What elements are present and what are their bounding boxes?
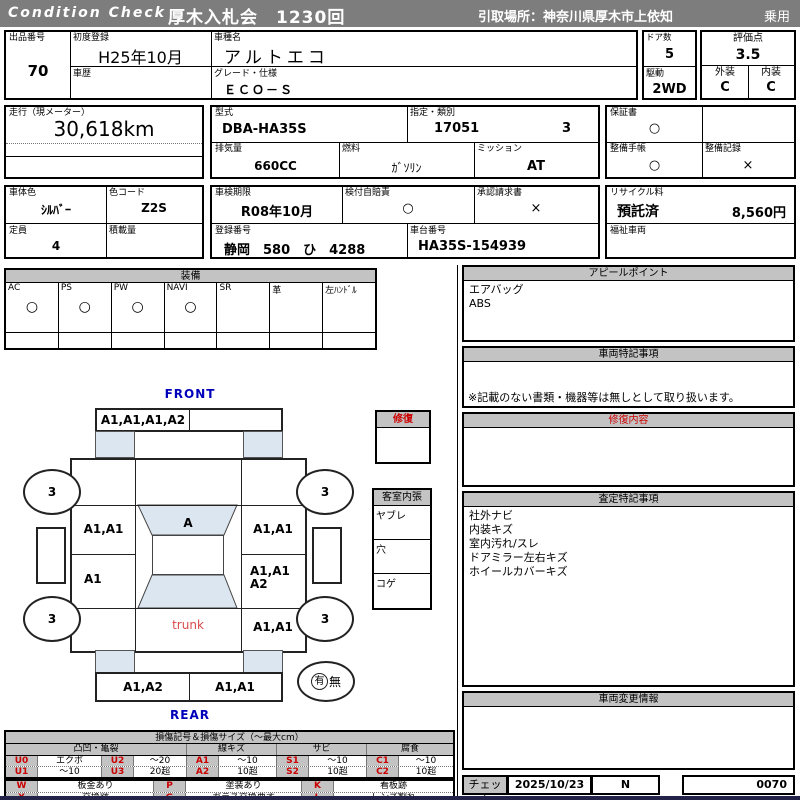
spare-present-mark: 有 xyxy=(311,673,328,690)
registration-number-label: 登録番号 xyxy=(215,226,251,236)
auction-title: 厚木入札会 1230回 xyxy=(168,3,345,28)
legend-size: 10超 xyxy=(219,767,277,777)
appeal-line: エアバッグ xyxy=(469,283,788,297)
equipment-col-ps: PS ○ xyxy=(59,283,112,348)
equipment-col-lhd: 左ﾊﾝﾄﾞﾙ xyxy=(323,283,375,348)
appeal-line: ABS xyxy=(469,297,788,311)
legend-row: W 板金あり P 塗装あり K 看板跡 xyxy=(6,781,453,792)
vehicle-notes-panel: 車両特記事項 ※記載のない書類・機器等は無しとして取り扱います。 xyxy=(462,346,795,408)
tire-rear-left: 3 xyxy=(23,596,81,642)
assessment-notes-body: 社外ナビ 内装キズ 室内汚れ/スレ ドアミラー左右キズ ホイールカバーキズ xyxy=(464,507,793,581)
model-name-label: 車種名 xyxy=(214,33,241,43)
legend-size: 10超 xyxy=(309,767,367,777)
tire-front-left: 3 xyxy=(23,469,81,515)
divider xyxy=(212,223,598,224)
rear-bumper-left-damage: A1,A2 xyxy=(97,680,189,694)
equipment-mark: ○ xyxy=(59,299,111,315)
transmission-label: ミッション xyxy=(477,144,522,154)
color-code: Z2S xyxy=(106,201,202,215)
equipment-col-leather: 革 xyxy=(270,283,323,348)
legend-code: K xyxy=(302,781,334,792)
model-code: DBA-HA35S xyxy=(222,122,307,137)
front-bumper: A1,A1,A1,A2 xyxy=(95,408,283,432)
legend-size: ～10 xyxy=(219,756,277,766)
assessment-line: 内装キズ xyxy=(469,523,788,537)
legend-code: U1 xyxy=(6,767,38,777)
first-registration-label: 初度登録 xyxy=(73,33,109,43)
repair-flag-box: 修復 xyxy=(375,410,431,464)
title-bar: Condition Check 厚木入札会 1230回 引取場所：神奈川県厚木市… xyxy=(0,0,800,27)
fuel: ｶﾞｿﾘﾝ xyxy=(339,159,474,176)
assessment-line: 社外ナビ xyxy=(469,509,788,523)
legend-code: S1 xyxy=(277,756,309,766)
equipment-mark: ○ xyxy=(165,299,217,315)
inspection-expiry-label: 車検期限 xyxy=(215,188,251,198)
equipment-title: 装備 xyxy=(6,270,375,283)
maintenance-record-label: 整備記録 xyxy=(705,144,741,154)
class-number: 17051 xyxy=(434,121,479,136)
legend-desc: 看板跡 xyxy=(334,781,453,792)
assessment-line: ホイールカバーキズ xyxy=(469,565,788,579)
brand-logo: Condition Check xyxy=(8,5,166,21)
appeal-points-title: アピールポイント xyxy=(464,267,793,281)
drive-label: 駆動 xyxy=(646,69,664,79)
assessment-notes-title: 査定特記事項 xyxy=(464,493,793,507)
front-bumper-damage: A1,A1,A1,A2 xyxy=(97,413,189,427)
warranty-label: 保証書 xyxy=(610,108,637,118)
repair-details-body xyxy=(464,428,793,432)
grade: ＥＣＯ－Ｓ xyxy=(224,81,294,98)
lot-number-label: 出品番号 xyxy=(9,33,45,43)
legend-size: 10超 xyxy=(399,767,453,777)
front-label: FRONT xyxy=(150,387,230,401)
divider xyxy=(644,66,695,67)
insurance-label: 検付自賠責 xyxy=(345,188,390,198)
recycle-fee: 8,560円 xyxy=(732,202,786,221)
equipment-col-ac: AC ○ xyxy=(6,283,59,348)
legend-code: C2 xyxy=(367,767,399,777)
legend-size: ～10 xyxy=(38,767,102,777)
legend-desc: 塗装あり xyxy=(186,781,302,792)
divider xyxy=(72,554,135,555)
divider xyxy=(211,32,212,98)
chassis-number: HA35S-154939 xyxy=(418,239,526,254)
interior-condition-box: 客室内張 ヤブレ 穴 コゲ xyxy=(372,488,432,610)
assessment-notes-panel: 査定特記事項 社外ナビ 内装キズ 室内汚れ/スレ ドアミラー左右キズ ホイールカ… xyxy=(462,491,795,687)
legend-code: U0 xyxy=(6,756,38,766)
rear-bumper-right-damage: A1,A1 xyxy=(189,680,281,694)
maintenance-book-mark: ○ xyxy=(607,158,702,173)
rear-left-corner xyxy=(95,650,135,673)
tire-rear-right: 3 xyxy=(296,596,354,642)
page-bottom-rule xyxy=(0,796,800,800)
front-left-corner xyxy=(95,431,135,458)
legend-code: P xyxy=(154,781,186,792)
equipment-col-sr: SR xyxy=(217,283,270,348)
doors-value: 5 xyxy=(644,47,695,62)
right-side-sill xyxy=(312,527,342,584)
interior-item-hole: 穴 xyxy=(374,540,430,574)
interior-grade: C xyxy=(748,80,794,95)
equipment-col-navi: NAVI ○ xyxy=(165,283,218,348)
vehicle-changes-body xyxy=(464,707,793,711)
doors-label: ドア数 xyxy=(646,33,672,43)
history-label: 車歴 xyxy=(73,69,91,79)
car-body: A A1,A1 A1 A1,A1 A1,A1 A2 A1,A1 trunk xyxy=(70,458,307,653)
divider xyxy=(6,156,202,157)
exterior-grade: C xyxy=(702,80,748,95)
equipment-table: 装備 AC ○ PS ○ PW ○ NAVI ○ SR 革 xyxy=(4,268,377,350)
sheet-number-cell: 0070 xyxy=(682,775,795,795)
class-sub-number: 3 xyxy=(562,121,571,136)
drive-value: 2WD xyxy=(644,82,695,97)
legend-size: 20超 xyxy=(134,767,187,777)
documents-box: 保証書 ○ 整備手帳 ○ 整備記録 × xyxy=(605,105,796,179)
doors-drive-box: ドア数 5 駆動 2WD xyxy=(642,30,697,100)
assessment-line: 室内汚れ/スレ xyxy=(469,537,788,551)
score-value: 3.5 xyxy=(702,47,794,63)
equipment-col-pw: PW ○ xyxy=(112,283,165,348)
class-label: 指定・類別 xyxy=(410,108,455,118)
repair-details-panel: 修復内容 xyxy=(462,412,795,487)
left-side-sill xyxy=(36,527,66,584)
legend-code: W xyxy=(6,781,38,792)
rear-label: REAR xyxy=(150,708,230,722)
divider xyxy=(6,143,202,144)
legend-code: A2 xyxy=(187,767,219,777)
warranty-mark: ○ xyxy=(607,121,702,136)
divider xyxy=(106,187,107,257)
mileage-value: 30,618km xyxy=(6,117,202,141)
legend-group: 凸凹・亀裂 xyxy=(6,744,187,755)
capacity: 4 xyxy=(6,239,106,253)
model-code-box: 型式 DBA-HA35S 指定・類別 17051 3 排気量 660CC 燃料 … xyxy=(210,105,600,179)
equipment-columns: AC ○ PS ○ PW ○ NAVI ○ SR 革 xyxy=(6,283,375,348)
repair-details-title: 修復内容 xyxy=(464,414,793,428)
divider xyxy=(72,505,305,506)
equipment-label: 左ﾊﾝﾄﾞﾙ xyxy=(325,283,357,296)
legend-code: U2 xyxy=(102,756,134,766)
appeal-points-panel: アピールポイント エアバッグ ABS xyxy=(462,265,795,342)
legend-desc: 板金あり xyxy=(38,781,154,792)
interior-item-burn: コゲ xyxy=(374,574,430,608)
usage-type: 乗用 xyxy=(764,6,790,25)
divider xyxy=(607,142,794,143)
front-right-corner xyxy=(243,431,283,458)
body-color-label: 車体色 xyxy=(9,188,36,198)
left-front-door-damage: A1,A1 xyxy=(72,522,135,536)
vehicle-notes-title: 車両特記事項 xyxy=(464,348,793,362)
legend-size: ～10 xyxy=(399,756,453,766)
vehicle-notes-disclaimer: ※記載のない書類・機器等は無しとして取り扱います。 xyxy=(468,391,740,405)
capacity-label: 定員 xyxy=(9,226,27,236)
legend-size: エクボ xyxy=(38,756,102,766)
legend-row: U1 ～10 U3 20超 A2 10超 S2 10超 C2 10超 xyxy=(6,766,453,777)
registration-number: 静岡 580 ひ 4288 xyxy=(224,239,365,258)
approval-request-label: 承認請求書 xyxy=(477,188,522,198)
repair-flag-title: 修復 xyxy=(377,412,429,428)
divider xyxy=(407,223,408,257)
displacement-label: 排気量 xyxy=(215,144,242,154)
transmission: AT xyxy=(474,159,598,174)
pickup-location: 引取場所：神奈川県厚木市上依知 xyxy=(478,6,673,25)
legend-group: 腐食 xyxy=(367,744,453,755)
color-code-label: 色コード xyxy=(109,188,145,198)
column-divider xyxy=(457,265,458,797)
divider xyxy=(189,410,190,430)
vehicle-changes-panel: 車両変更情報 xyxy=(462,691,795,770)
windshield-damage: A xyxy=(135,516,241,530)
legend-size: ～10 xyxy=(309,756,367,766)
right-rear-door-damage-1: A1,A1 xyxy=(250,564,290,578)
equipment-label: SR xyxy=(219,283,231,293)
legend-group: 線キズ xyxy=(187,744,277,755)
maintenance-record-mark: × xyxy=(702,158,794,173)
legend-code: A1 xyxy=(187,756,219,766)
vehicle-id-box: 出品番号 70 初度登録 H25年10月 車歴 車種名 アルトエコ グレード・仕… xyxy=(4,30,638,100)
approval-request-mark: × xyxy=(474,201,598,216)
appeal-points-body: エアバッグ ABS xyxy=(464,281,793,313)
legend-title: 損傷記号＆損傷サイズ（～最大cm） xyxy=(6,732,453,744)
rear-right-corner xyxy=(243,650,283,673)
score-label: 評価点 xyxy=(702,34,794,44)
interior-item-tear: ヤブレ xyxy=(374,506,430,540)
score-box: 評価点 3.5 外装 C 内装 C xyxy=(700,30,796,100)
check-label-cell: チェック xyxy=(462,775,508,795)
recycle-fee-label: リサイクル料 xyxy=(610,188,664,198)
displacement: 660CC xyxy=(212,159,339,173)
divider xyxy=(212,142,598,143)
maintenance-book-label: 整備手帳 xyxy=(610,144,646,154)
interior-grade-label: 内装 xyxy=(748,68,794,78)
equipment-label: AC xyxy=(8,283,20,293)
rear-bumper: A1,A2 A1,A1 xyxy=(95,672,283,702)
chassis-number-label: 車台番号 xyxy=(410,226,446,236)
legend-group-row: 凸凹・亀裂 線キズ サビ 腐食 xyxy=(6,744,453,755)
check-date-cell: 2025/10/23 xyxy=(507,775,592,795)
check-code-cell: N xyxy=(591,775,660,795)
welfare-vehicle-label: 福祉車両 xyxy=(610,226,646,236)
legend-row: U0 エクボ U2 ～20 A1 ～10 S1 ～10 C1 ～10 xyxy=(6,755,453,766)
equipment-label: 革 xyxy=(272,283,281,296)
recycle-status: 預託済 xyxy=(617,201,659,221)
model-name: アルトエコ xyxy=(224,43,329,68)
interior-condition-title: 客室内張 xyxy=(374,490,430,506)
mileage-box: 走行（現メーター） 30,618km xyxy=(4,105,204,179)
right-rear-door-damage-2: A2 xyxy=(250,577,268,591)
divider xyxy=(241,554,305,555)
legend-group: サビ xyxy=(277,744,367,755)
roof-panel xyxy=(152,535,224,575)
trunk-label: trunk xyxy=(135,618,241,632)
spare-tire-indicator: 有 無 xyxy=(297,661,355,702)
legend-code: S2 xyxy=(277,767,309,777)
tire-front-right: 3 xyxy=(296,469,354,515)
divider xyxy=(407,107,408,142)
grade-label: グレード・仕様 xyxy=(214,69,277,79)
divider xyxy=(6,223,202,224)
right-front-door-damage: A1,A1 xyxy=(241,522,305,536)
inspection-expiry: R08年10月 xyxy=(212,201,342,220)
legend-size: ～20 xyxy=(134,756,187,766)
body-color: ｼﾙﾊﾞｰ xyxy=(6,201,106,218)
equipment-label: NAVI xyxy=(167,283,188,293)
vehicle-notes-body: ※記載のない書類・機器等は無しとして取り扱います。 xyxy=(464,362,793,406)
recycle-box: リサイクル料 預託済 8,560円 福祉車両 xyxy=(605,185,796,259)
color-capacity-box: 車体色 ｼﾙﾊﾞｰ 色コード Z2S 定員 4 積載量 xyxy=(4,185,204,259)
assessment-line: ドアミラー左右キズ xyxy=(469,551,788,565)
damage-legend-table: 損傷記号＆損傷サイズ（～最大cm） 凸凹・亀裂 線キズ サビ 腐食 U0 エクボ… xyxy=(4,730,455,779)
condition-check-sheet: Condition Check 厚木入札会 1230回 引取場所：神奈川県厚木市… xyxy=(0,0,800,800)
load-label: 積載量 xyxy=(109,226,136,236)
first-registration: H25年10月 xyxy=(70,44,211,68)
legend-code: U3 xyxy=(102,767,134,777)
equipment-mark: ○ xyxy=(112,299,164,315)
inspection-registration-box: 車検期限 R08年10月 検付自賠責 ○ 承認請求書 × 登録番号 静岡 580… xyxy=(210,185,600,259)
spare-absent-mark: 無 xyxy=(329,673,341,690)
divider xyxy=(72,608,305,609)
lot-number: 70 xyxy=(6,62,70,80)
exterior-grade-label: 外装 xyxy=(702,68,748,78)
equipment-mark: ○ xyxy=(6,299,58,315)
equipment-label: PS xyxy=(61,283,72,293)
left-rear-door-damage: A1 xyxy=(84,572,102,586)
equipment-label: PW xyxy=(114,283,128,293)
model-code-label: 型式 xyxy=(215,108,233,118)
divider xyxy=(6,332,375,333)
vehicle-changes-title: 車両変更情報 xyxy=(464,693,793,707)
legend-code: C1 xyxy=(367,756,399,766)
divider xyxy=(607,223,794,224)
fuel-label: 燃料 xyxy=(342,144,360,154)
insurance-mark: ○ xyxy=(342,201,474,216)
